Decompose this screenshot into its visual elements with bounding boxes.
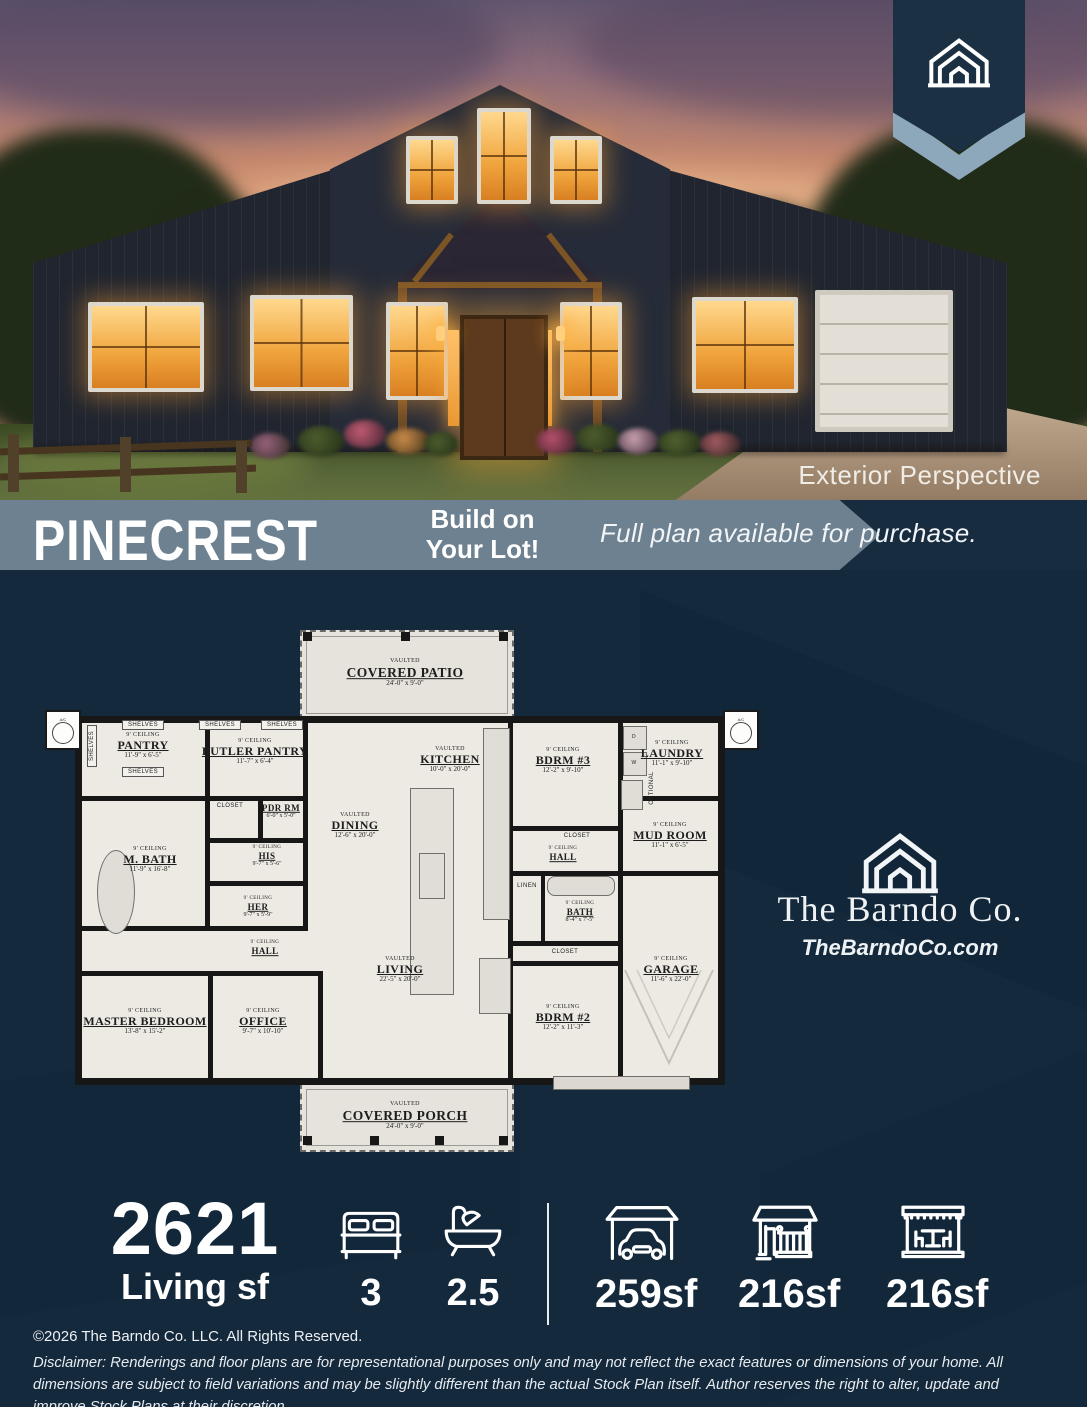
baths-count: 2.5 bbox=[440, 1272, 506, 1315]
patio-post bbox=[303, 632, 312, 641]
room-living: VAULTEDLIVING22'-5" x 20'-0" bbox=[377, 956, 423, 984]
plan-wall bbox=[82, 971, 322, 976]
room-hall-left: 9' CEILINGHALL bbox=[251, 940, 280, 956]
room-pdr-rm: 8' CEILINGPDR RM6'-0" x 5'-0" bbox=[262, 797, 300, 819]
patio-post bbox=[401, 632, 410, 641]
kitchen-counter bbox=[483, 728, 510, 920]
garage-icon bbox=[605, 1203, 679, 1263]
flower-bush bbox=[298, 426, 344, 456]
plan-name-title: PINECREST bbox=[33, 507, 318, 574]
availability-text: Full plan available for purchase. bbox=[600, 518, 977, 549]
washer-label: W bbox=[631, 760, 636, 766]
room-dining: VAULTEDDINING12'-6" x 20'-0" bbox=[331, 812, 378, 840]
porch-post bbox=[435, 1136, 444, 1145]
laundry-sink bbox=[621, 780, 643, 810]
shelves-label: SHELVES bbox=[122, 720, 164, 730]
ac-condenser: A/C bbox=[723, 710, 759, 750]
house-window bbox=[692, 297, 798, 393]
garage-sf: 259sf bbox=[595, 1272, 689, 1317]
front-door bbox=[460, 315, 548, 460]
flower-bush bbox=[700, 432, 740, 456]
porch-post bbox=[303, 1136, 312, 1145]
room-his-closet: 9' CEILINGHIS9'-7" x 5'-6" bbox=[252, 845, 281, 867]
patio-icon bbox=[898, 1203, 968, 1263]
garage-door bbox=[815, 290, 953, 432]
build-on-your-lot-label: Build on Your Lot! bbox=[400, 505, 565, 565]
fence-post bbox=[8, 434, 19, 492]
porch-truss-beam bbox=[398, 282, 602, 288]
build-line2: Your Lot! bbox=[400, 535, 565, 565]
room-covered-porch: VAULTEDCOVERED PORCH24'-0" x 9'-0" bbox=[343, 1101, 468, 1131]
patio-sf: 216sf bbox=[886, 1272, 980, 1317]
porch-lamp bbox=[436, 326, 445, 341]
closet-label: CLOSET bbox=[217, 803, 243, 809]
ac-condenser: A/C bbox=[45, 710, 81, 750]
fence-post bbox=[236, 441, 247, 493]
porch-icon bbox=[750, 1203, 820, 1263]
room-butler-pantry: 9' CEILINGBUTLER PANTRY11'-7" x 6'-4" bbox=[202, 738, 308, 766]
house-window bbox=[406, 136, 458, 204]
garage-door-opening bbox=[553, 1076, 690, 1090]
room-m-bath: 9' CEILINGM. BATH11'-9" x 16'-8" bbox=[123, 846, 176, 874]
room-office: 9' CEILINGOFFICE9'-7" x 10'-10" bbox=[239, 1008, 287, 1036]
room-mud-room: 9' CEILINGMUD ROOM11'-1" x 6'-5" bbox=[633, 822, 707, 850]
room-bdrm3: 9' CEILINGBDRM #312'-2" x 9'-10" bbox=[536, 747, 590, 775]
hero-caption: Exterior Perspective bbox=[798, 460, 1041, 491]
closet-label: CLOSET bbox=[564, 833, 590, 839]
room-covered-patio: VAULTEDCOVERED PATIO24'-0" x 9'-0" bbox=[347, 658, 464, 688]
linen-label: LINEN bbox=[517, 883, 537, 889]
fence-post bbox=[120, 437, 131, 492]
house-window bbox=[560, 302, 622, 400]
room-hall-right: 9' CEILINGHALL bbox=[549, 846, 578, 862]
build-line1: Build on bbox=[400, 505, 565, 535]
room-pantry: 9' CEILINGPANTRY11'-9" x 6'-5" bbox=[117, 732, 168, 760]
plan-wall bbox=[208, 976, 213, 1078]
flower-bush bbox=[344, 420, 386, 448]
porch-post bbox=[499, 1136, 508, 1145]
plan-wall bbox=[205, 801, 210, 928]
porch-sf: 216sf bbox=[738, 1272, 832, 1317]
flyer-page: Exterior Perspective PINECREST Build on … bbox=[0, 0, 1087, 1407]
stats-divider bbox=[547, 1203, 549, 1325]
flower-bush bbox=[576, 424, 620, 452]
brand-name: The Barndo Co. bbox=[760, 888, 1040, 930]
living-sf-value: 2621 bbox=[95, 1186, 295, 1271]
shelves-label: SHELVES bbox=[87, 725, 97, 767]
room-master-bedroom: 9' CEILINGMASTER BEDROOM13'-8" x 15'-2" bbox=[83, 1008, 206, 1036]
plan-wall bbox=[318, 971, 323, 1078]
porch-post bbox=[370, 1136, 379, 1145]
fireplace bbox=[479, 958, 511, 1014]
plan-wall bbox=[541, 876, 545, 941]
barn-logo-icon bbox=[857, 828, 943, 894]
house-window bbox=[386, 302, 448, 400]
optional-label: OPTIONAL bbox=[649, 771, 655, 805]
bed-icon bbox=[338, 1208, 404, 1260]
living-sf-label: Living sf bbox=[95, 1266, 295, 1308]
house-window bbox=[477, 108, 531, 204]
door-sidelight bbox=[448, 330, 459, 426]
flower-bush bbox=[250, 433, 290, 459]
flower-bush bbox=[536, 428, 576, 454]
plan-wall bbox=[513, 941, 620, 946]
room-garage: 9' CEILINGGARAGE11'-6" x 22'-0" bbox=[643, 956, 698, 984]
plan-wall bbox=[513, 826, 620, 831]
room-kitchen: VAULTEDKITCHEN10'-0" x 20'-0" bbox=[420, 746, 479, 774]
plan-wall bbox=[205, 881, 308, 886]
plan-wall bbox=[513, 961, 620, 966]
range bbox=[419, 853, 445, 899]
room-her-closet: 9' CEILINGHER9'-7" x 5'-9" bbox=[243, 896, 272, 918]
house-window bbox=[88, 302, 204, 392]
ac-label: A/C bbox=[738, 717, 745, 722]
house-window bbox=[550, 136, 602, 204]
shelves-label: SHELVES bbox=[122, 767, 164, 777]
floor-plan: A/C A/C VAULTEDCOVERED PATIO24'-0" x 9'-… bbox=[75, 628, 725, 1155]
house-window bbox=[250, 295, 353, 391]
barn-logo-icon bbox=[926, 34, 992, 88]
patio-post bbox=[499, 632, 508, 641]
flower-bush bbox=[618, 428, 658, 454]
flower-bush bbox=[424, 432, 458, 456]
copyright-text: ©2026 The Barndo Co. LLC. All Rights Res… bbox=[33, 1328, 362, 1345]
beds-count: 3 bbox=[338, 1272, 404, 1315]
insert-tub bbox=[547, 876, 615, 896]
shelves-label: SHELVES bbox=[199, 720, 241, 730]
disclaimer-text: Disclaimer: Renderings and floor plans a… bbox=[33, 1352, 1055, 1407]
flower-bush bbox=[658, 430, 702, 456]
attic-access-label: ATTIC ACCESS bbox=[262, 838, 299, 843]
closet-label: CLOSET bbox=[552, 949, 578, 955]
room-laundry: 9' CEILINGLAUNDRY11'-1" x 9'-10" bbox=[641, 740, 703, 768]
porch-lamp bbox=[556, 326, 565, 341]
room-bath: 9' CEILINGBATH8'-4" x 7'-5" bbox=[565, 901, 594, 923]
dryer-label: D bbox=[632, 734, 636, 740]
ac-label: A/C bbox=[60, 717, 67, 722]
brand-website-link[interactable]: TheBarndoCo.com bbox=[760, 935, 1040, 961]
room-bdrm2: 9' CEILINGBDRM #212'-2" x 11'-3" bbox=[536, 1004, 590, 1032]
shelves-label: SHELVES bbox=[261, 720, 303, 730]
bathtub-icon bbox=[440, 1202, 506, 1260]
